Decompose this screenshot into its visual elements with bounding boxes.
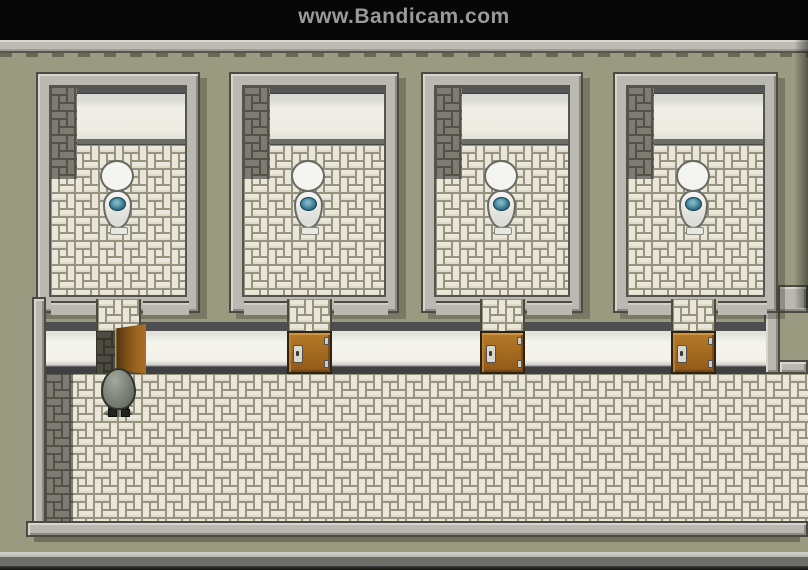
stall-frame-bottom-right [334, 301, 388, 315]
toilet-bowl-icon [103, 190, 132, 229]
watermark-text: www.Bandicam.com [0, 0, 808, 34]
stall-floor-shadow [628, 87, 654, 179]
watermark-bar: www.Bandicam.com [0, 0, 808, 40]
bottom-wall-shadow [34, 537, 800, 542]
stall-door[interactable] [480, 331, 525, 374]
hallway-floor [46, 374, 808, 521]
stall-frame-bottom-right [143, 301, 189, 315]
stall-door[interactable] [287, 331, 332, 374]
door-hinge-icon [708, 337, 713, 345]
door-hinge-icon [517, 337, 522, 345]
stall-frame-bottom-left [244, 301, 289, 315]
stall-frame-bottom-left [628, 301, 673, 315]
stall-frame-bottom-right [527, 301, 572, 315]
stall-doorway-1[interactable] [96, 322, 141, 374]
stall-floor-shadow [244, 87, 270, 179]
stall-floor-shadow [436, 87, 462, 179]
stall-doorway-2[interactable] [287, 322, 332, 374]
door-handle-icon [677, 345, 687, 363]
top-wall-cap [0, 40, 808, 53]
toilet-base [686, 227, 704, 235]
toilet-bowl-icon [294, 190, 323, 229]
toilet-base [110, 227, 128, 235]
bottom-gray-band [0, 557, 808, 566]
character-foot [108, 409, 117, 417]
toilet-lid-icon [676, 160, 710, 192]
open-door-panel[interactable] [115, 324, 146, 374]
stall-door[interactable] [671, 331, 716, 374]
toilet-water [109, 197, 126, 211]
door-hinge-icon [324, 360, 329, 368]
toilet-water [685, 197, 702, 211]
stall-frame-bottom-left [51, 301, 98, 315]
toilet-lid-icon [291, 160, 325, 192]
door-handle-icon [293, 345, 303, 363]
toilet-water [493, 197, 510, 211]
door-handle-icon [486, 345, 496, 363]
character-hair [101, 368, 136, 410]
bottom-black-band [0, 566, 808, 570]
toilet-1[interactable] [98, 160, 140, 234]
stall-doorway-3[interactable] [480, 322, 525, 374]
toilet-bowl-icon [679, 190, 708, 229]
stall-floor-shadow [51, 87, 77, 179]
player-character[interactable] [100, 368, 137, 418]
toilet-water [300, 197, 317, 211]
toilet-bowl-icon [487, 190, 516, 229]
bottom-wall [26, 521, 808, 537]
right-edge-shade [794, 40, 808, 308]
stall-frame-bottom-left [436, 301, 482, 315]
door-hinge-icon [708, 360, 713, 368]
toilet-base [301, 227, 319, 235]
toilet-2[interactable] [289, 160, 331, 234]
stall-front-wall [46, 322, 766, 374]
toilet-base [494, 227, 512, 235]
character-foot [121, 409, 130, 417]
toilet-4[interactable] [674, 160, 716, 234]
hallway-floor-shadow-column [46, 374, 73, 521]
toilet-lid-icon [484, 160, 518, 192]
toilet-lid-icon [100, 160, 134, 192]
left-wall [32, 297, 46, 537]
door-hinge-icon [517, 360, 522, 368]
stall-frame-bottom-right [718, 301, 767, 315]
door-hinge-icon [324, 337, 329, 345]
toilet-3[interactable] [482, 160, 524, 234]
right-wall-step-bottom [778, 360, 808, 374]
game-viewport: www.Bandicam.com [0, 0, 808, 570]
stall-doorway-4[interactable] [671, 322, 716, 374]
